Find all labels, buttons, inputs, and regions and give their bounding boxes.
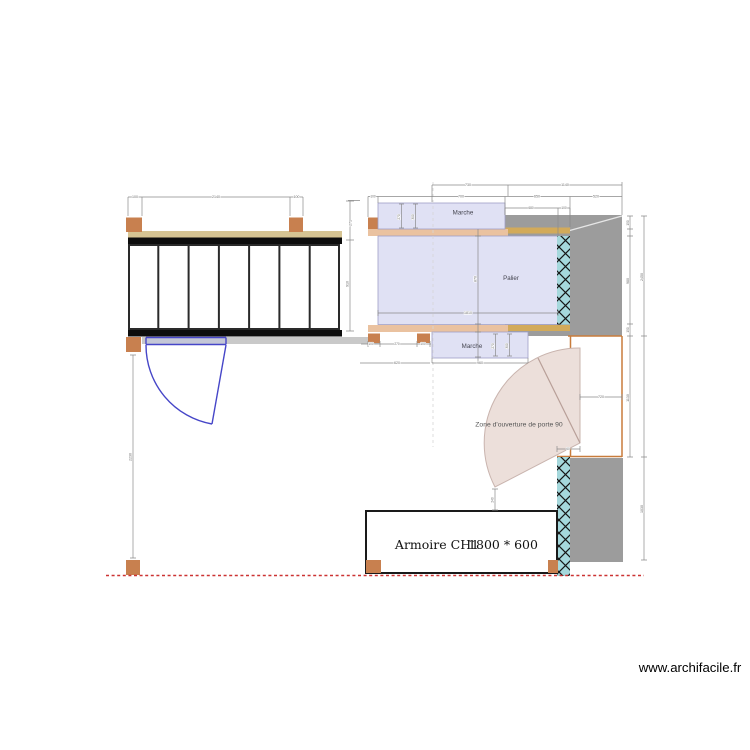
svg-text:100: 100: [132, 195, 138, 199]
svg-text:100: 100: [294, 195, 300, 199]
insulation-column-bottom[interactable]: [557, 457, 570, 576]
svg-text:1140: 1140: [561, 183, 569, 187]
svg-text:100: 100: [561, 206, 567, 210]
svg-text:100: 100: [370, 195, 376, 199]
stair-bay[interactable]: [128, 231, 342, 337]
svg-text:910: 910: [346, 281, 350, 287]
svg-text:150: 150: [626, 220, 630, 226]
stair-panels[interactable]: [129, 245, 339, 329]
svg-text:680: 680: [528, 206, 534, 210]
post-stair-top-right[interactable]: [289, 218, 303, 233]
insulation-column-top[interactable]: [557, 236, 570, 325]
stair-top-bar: [128, 238, 342, 245]
dim-fan-tip: 240: [491, 489, 499, 510]
door-left-swing-arc: [146, 345, 212, 424]
svg-text:980: 980: [626, 278, 630, 284]
post-room-bottom-left[interactable]: [126, 560, 140, 575]
svg-text:60: 60: [566, 447, 570, 451]
armoire-foot-left: [366, 560, 381, 573]
svg-text:150: 150: [626, 327, 630, 333]
dim-right-chain-a: 150 980 150 1130: [626, 216, 633, 457]
dim-stair-top: 100 2140 100: [128, 195, 303, 216]
wall-block-bottom[interactable]: [570, 458, 623, 562]
dim-bottom-row: 100 270 100: [361, 341, 431, 347]
dim-stair-side: 271 910: [346, 201, 361, 332]
dim-right-chain-b: 2450 1030: [640, 216, 647, 560]
svg-text:300: 300: [505, 343, 509, 349]
door-left[interactable]: [146, 337, 226, 424]
svg-text:1030: 1030: [640, 505, 644, 513]
dim-left-wall: 2230: [129, 355, 137, 558]
floorplan-canvas: Armoire CH1 1800 * 600 100 2140 100 271 …: [0, 0, 750, 750]
svg-text:270: 270: [394, 342, 400, 346]
watermark: www.archifacile.fr: [638, 660, 742, 675]
strip-gold-bottom: [505, 325, 570, 331]
strip-salmon-top: [368, 229, 508, 236]
svg-text:620: 620: [394, 361, 400, 365]
svg-text:271: 271: [349, 220, 353, 226]
strip-salmon-bottom: [368, 325, 508, 332]
svg-text:720: 720: [598, 395, 604, 399]
stair-bottom-bar: [128, 330, 342, 337]
floorplan-svg: Armoire CH1 1800 * 600 100 2140 100 271 …: [0, 0, 750, 750]
svg-text:300: 300: [411, 214, 415, 220]
svg-text:270: 270: [491, 343, 495, 349]
svg-text:240: 240: [491, 497, 495, 503]
palier-label: Palier: [503, 275, 519, 282]
svg-text:2450: 2450: [640, 273, 644, 281]
marche-bottom-label: Marche: [462, 343, 483, 350]
svg-text:100: 100: [420, 342, 426, 346]
armoire-size-label: 1800 * 600: [468, 537, 538, 552]
stair-top-rail: [128, 231, 342, 238]
strip-gold-top: [505, 228, 570, 234]
post-stair-top-left[interactable]: [126, 218, 142, 233]
door-left-leaf-open: [212, 345, 226, 424]
armoire-foot-right: [548, 560, 558, 573]
armoire[interactable]: Armoire CH1 1800 * 600: [366, 511, 558, 573]
svg-text:270: 270: [397, 214, 401, 220]
dim-lower-widths: 620 960: [360, 358, 528, 365]
marche-top-label: Marche: [453, 210, 474, 217]
svg-text:520: 520: [593, 195, 599, 199]
svg-text:700: 700: [458, 195, 464, 199]
post-stair-bottom-left[interactable]: [126, 337, 141, 352]
armoire-name-label: Armoire CH1: [394, 537, 479, 552]
svg-text:100: 100: [368, 342, 374, 346]
svg-text:1130: 1130: [626, 394, 630, 402]
svg-text:730: 730: [465, 183, 471, 187]
svg-text:2140: 2140: [212, 195, 220, 199]
svg-text:650: 650: [534, 195, 540, 199]
svg-text:870: 870: [474, 276, 478, 282]
door-zone-label: Zone d'ouverture de porte 90: [475, 422, 563, 429]
svg-text:2230: 2230: [129, 453, 133, 461]
svg-text:960: 960: [477, 361, 483, 365]
svg-text:1810: 1810: [464, 311, 472, 315]
